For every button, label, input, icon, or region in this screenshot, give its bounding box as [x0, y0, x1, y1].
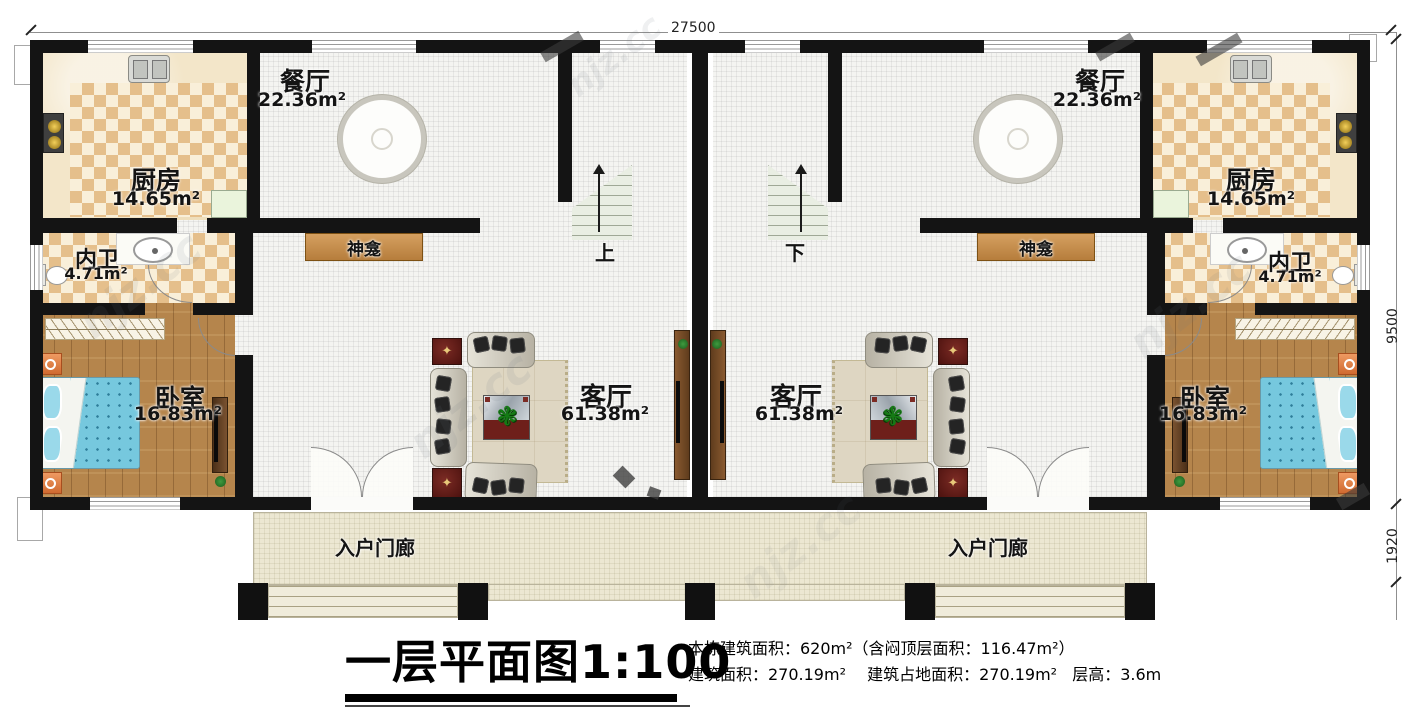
- right-dimension-porch-value: 1920: [1385, 525, 1401, 567]
- table-plant: ❃: [492, 400, 522, 434]
- stove: [43, 113, 64, 153]
- sink-basin: [133, 60, 148, 79]
- bathroom-bottom-wall-stub: [1165, 303, 1207, 315]
- stairwell-wall: [828, 52, 842, 202]
- window: [984, 40, 1088, 53]
- bed-pillow: [1338, 384, 1358, 420]
- dining-table: [974, 95, 1062, 183]
- room-label: 16.83m²: [1159, 403, 1247, 425]
- sofa-pillow: [434, 396, 451, 413]
- sofa-pillow: [491, 335, 508, 352]
- window: [1220, 497, 1310, 510]
- wardrobe-rod: [46, 329, 164, 330]
- window: [90, 497, 180, 510]
- fridge: [1153, 190, 1189, 218]
- sofa-pillow: [472, 477, 490, 495]
- bathroom-bottom-wall: [1255, 303, 1363, 315]
- sofa-pillow: [473, 336, 491, 354]
- wardrobe: [45, 318, 165, 340]
- double-bed: [1260, 377, 1363, 469]
- corner-pad: [523, 397, 528, 402]
- bathroom-right-wall: [1147, 233, 1165, 315]
- burner: [48, 120, 61, 133]
- room-label: 16.83m²: [134, 403, 222, 425]
- bedroom-right-wall: [1147, 355, 1165, 497]
- bathroom-bottom-wall: [37, 303, 145, 315]
- sofa-pillow: [435, 418, 451, 434]
- floor-plan-canvas: 27500 9500 1920 ✦✦❃ ✦✦❃ 餐厅22.36m²餐厅22.36…: [0, 0, 1414, 709]
- cabinet-plant: [712, 339, 722, 349]
- bath-sink: [1227, 237, 1267, 263]
- bathroom-right-wall: [235, 233, 253, 315]
- table-center: [1007, 128, 1029, 150]
- side-table: ✦: [938, 468, 968, 498]
- porch-column: [458, 583, 488, 620]
- kitchen-partition-wall: [247, 53, 260, 220]
- ring: [45, 478, 56, 489]
- wardrobe-rod: [1236, 329, 1354, 330]
- sofa-pillow: [435, 375, 452, 392]
- sofa-pillow: [490, 479, 507, 496]
- kitchen-sink: [1230, 55, 1272, 83]
- building-area: 建筑面积：270.19m²: [688, 665, 846, 684]
- sofa-pillow: [893, 479, 910, 496]
- coffee-table: ❃: [483, 395, 530, 440]
- sofa-pillow: [434, 438, 451, 455]
- sofa-pillow: [948, 375, 965, 392]
- table-plant: ❃: [878, 400, 908, 434]
- bathroom-top-wall: [37, 218, 177, 233]
- table-center: [371, 128, 393, 150]
- stairs-arrow-stem: [800, 172, 802, 232]
- room-label: 61.38m²: [755, 403, 843, 425]
- building-info: 本栋建筑面积：620m²（含闷顶层面积：116.47m²） 建筑面积：270.1…: [688, 636, 1161, 688]
- room-label: 神龛: [1019, 235, 1053, 260]
- sofa-pillow: [911, 477, 929, 495]
- building-info-line1: 本栋建筑面积：620m²（含闷顶层面积：116.47m²）: [688, 636, 1161, 662]
- kitchen-dining-bottom-wall: [920, 218, 1193, 233]
- porch-steps-left: [268, 585, 458, 618]
- sink-basin: [1233, 60, 1248, 79]
- room-label: 神龛: [347, 235, 381, 260]
- cabinet-plant: [678, 339, 688, 349]
- window: [1357, 245, 1370, 290]
- stairs-arrow-head: [593, 164, 605, 174]
- window: [88, 40, 193, 53]
- stove: [1336, 113, 1357, 153]
- tv-screen: [720, 381, 724, 443]
- window: [312, 40, 416, 53]
- toilet-bowl: [1332, 266, 1354, 285]
- bed-pillow: [1338, 426, 1358, 462]
- storey-height: 层高：3.6m: [1072, 665, 1161, 684]
- bedroom-plant: [1174, 476, 1185, 487]
- room-label: 下: [785, 237, 805, 266]
- window: [745, 40, 800, 53]
- side-table: ✦: [938, 338, 968, 365]
- sofa-pillow: [874, 337, 890, 353]
- tv-screen: [676, 381, 680, 443]
- stairs-arrow-head: [795, 164, 807, 174]
- corner-pad: [485, 397, 490, 402]
- sofa-pillow: [509, 337, 525, 353]
- window: [1207, 40, 1312, 53]
- kitchen-dining-bottom-wall: [207, 218, 480, 233]
- faucet: [1242, 248, 1248, 254]
- sink-basin: [152, 60, 167, 79]
- corner-pad: [910, 397, 915, 402]
- porch-column: [905, 583, 935, 620]
- living-tv-cabinet: [710, 330, 726, 480]
- bedroom-plant: [215, 476, 226, 487]
- room-label: 22.36m²: [1053, 89, 1141, 111]
- room-label: 14.65m²: [112, 188, 200, 210]
- kitchen-partition-wall: [1140, 53, 1153, 220]
- kitchen-sink: [128, 55, 170, 83]
- burner: [1339, 136, 1352, 149]
- bathroom-bottom-wall-stub: [193, 303, 235, 315]
- plan-title: 一层平面图1:100: [345, 626, 731, 692]
- dimension-tick: [1385, 24, 1396, 35]
- bath-sink: [133, 237, 173, 263]
- room-label: 61.38m²: [561, 403, 649, 425]
- bathroom-top-wall: [1223, 218, 1363, 233]
- porch-column: [238, 583, 268, 620]
- dining-table: [338, 95, 426, 183]
- building-footprint: 建筑占地面积：270.19m²: [867, 665, 1057, 684]
- dimension-tick: [25, 24, 36, 35]
- dwelling-unit-left: ✦✦❃: [30, 40, 700, 510]
- window: [600, 40, 655, 53]
- porch-column: [685, 583, 715, 620]
- sofa-pillow: [875, 477, 891, 493]
- window: [30, 245, 43, 290]
- faucet: [152, 248, 158, 254]
- side-table: ✦: [432, 338, 462, 365]
- stairs-arrow-stem: [598, 172, 600, 232]
- room-label: 4.71m²: [64, 264, 127, 283]
- room-label: 上: [595, 237, 615, 266]
- entry-door-opening: [311, 497, 413, 510]
- entry-door-opening: [987, 497, 1089, 510]
- fridge: [211, 190, 247, 218]
- title-block: 一层平面图1:100: [345, 626, 731, 692]
- porch-steps-right: [935, 585, 1125, 618]
- coffee-table: ❃: [870, 395, 917, 440]
- party-wall: [692, 40, 708, 510]
- living-tv-cabinet: [674, 330, 690, 480]
- title-underline-thick: [345, 694, 677, 702]
- ring: [45, 359, 56, 370]
- double-bed: [37, 377, 140, 469]
- top-dimension-value: 27500: [668, 20, 719, 36]
- room-label: 入户门廊: [335, 532, 415, 561]
- sofa-pillow: [948, 418, 964, 434]
- stairwell-wall: [558, 52, 572, 202]
- corner-pad: [872, 397, 877, 402]
- ring: [1344, 478, 1355, 489]
- side-table: ✦: [432, 468, 462, 498]
- bedroom-right-wall: [235, 355, 253, 497]
- sofa-pillow: [508, 477, 524, 493]
- bed-pillow: [42, 384, 62, 420]
- right-dimension-main-value: 9500: [1385, 305, 1401, 347]
- sofa-pillow: [892, 335, 909, 352]
- burner: [1339, 120, 1352, 133]
- room-label: 入户门廊: [948, 532, 1028, 561]
- room-label: 14.65m²: [1207, 188, 1295, 210]
- wardrobe: [1235, 318, 1355, 340]
- room-label: 4.71m²: [1258, 267, 1321, 286]
- sofa-pillow: [949, 396, 966, 413]
- burner: [48, 136, 61, 149]
- title-underline-thin: [345, 705, 690, 707]
- building-info-line2: 建筑面积：270.19m² 建筑占地面积：270.19m² 层高：3.6m: [688, 662, 1161, 688]
- ring: [1344, 359, 1355, 370]
- sink-basin: [1252, 60, 1267, 79]
- porch-column: [1125, 583, 1155, 620]
- sofa-pillow: [949, 438, 966, 455]
- room-label: 22.36m²: [258, 89, 346, 111]
- sofa-pillow: [910, 336, 928, 354]
